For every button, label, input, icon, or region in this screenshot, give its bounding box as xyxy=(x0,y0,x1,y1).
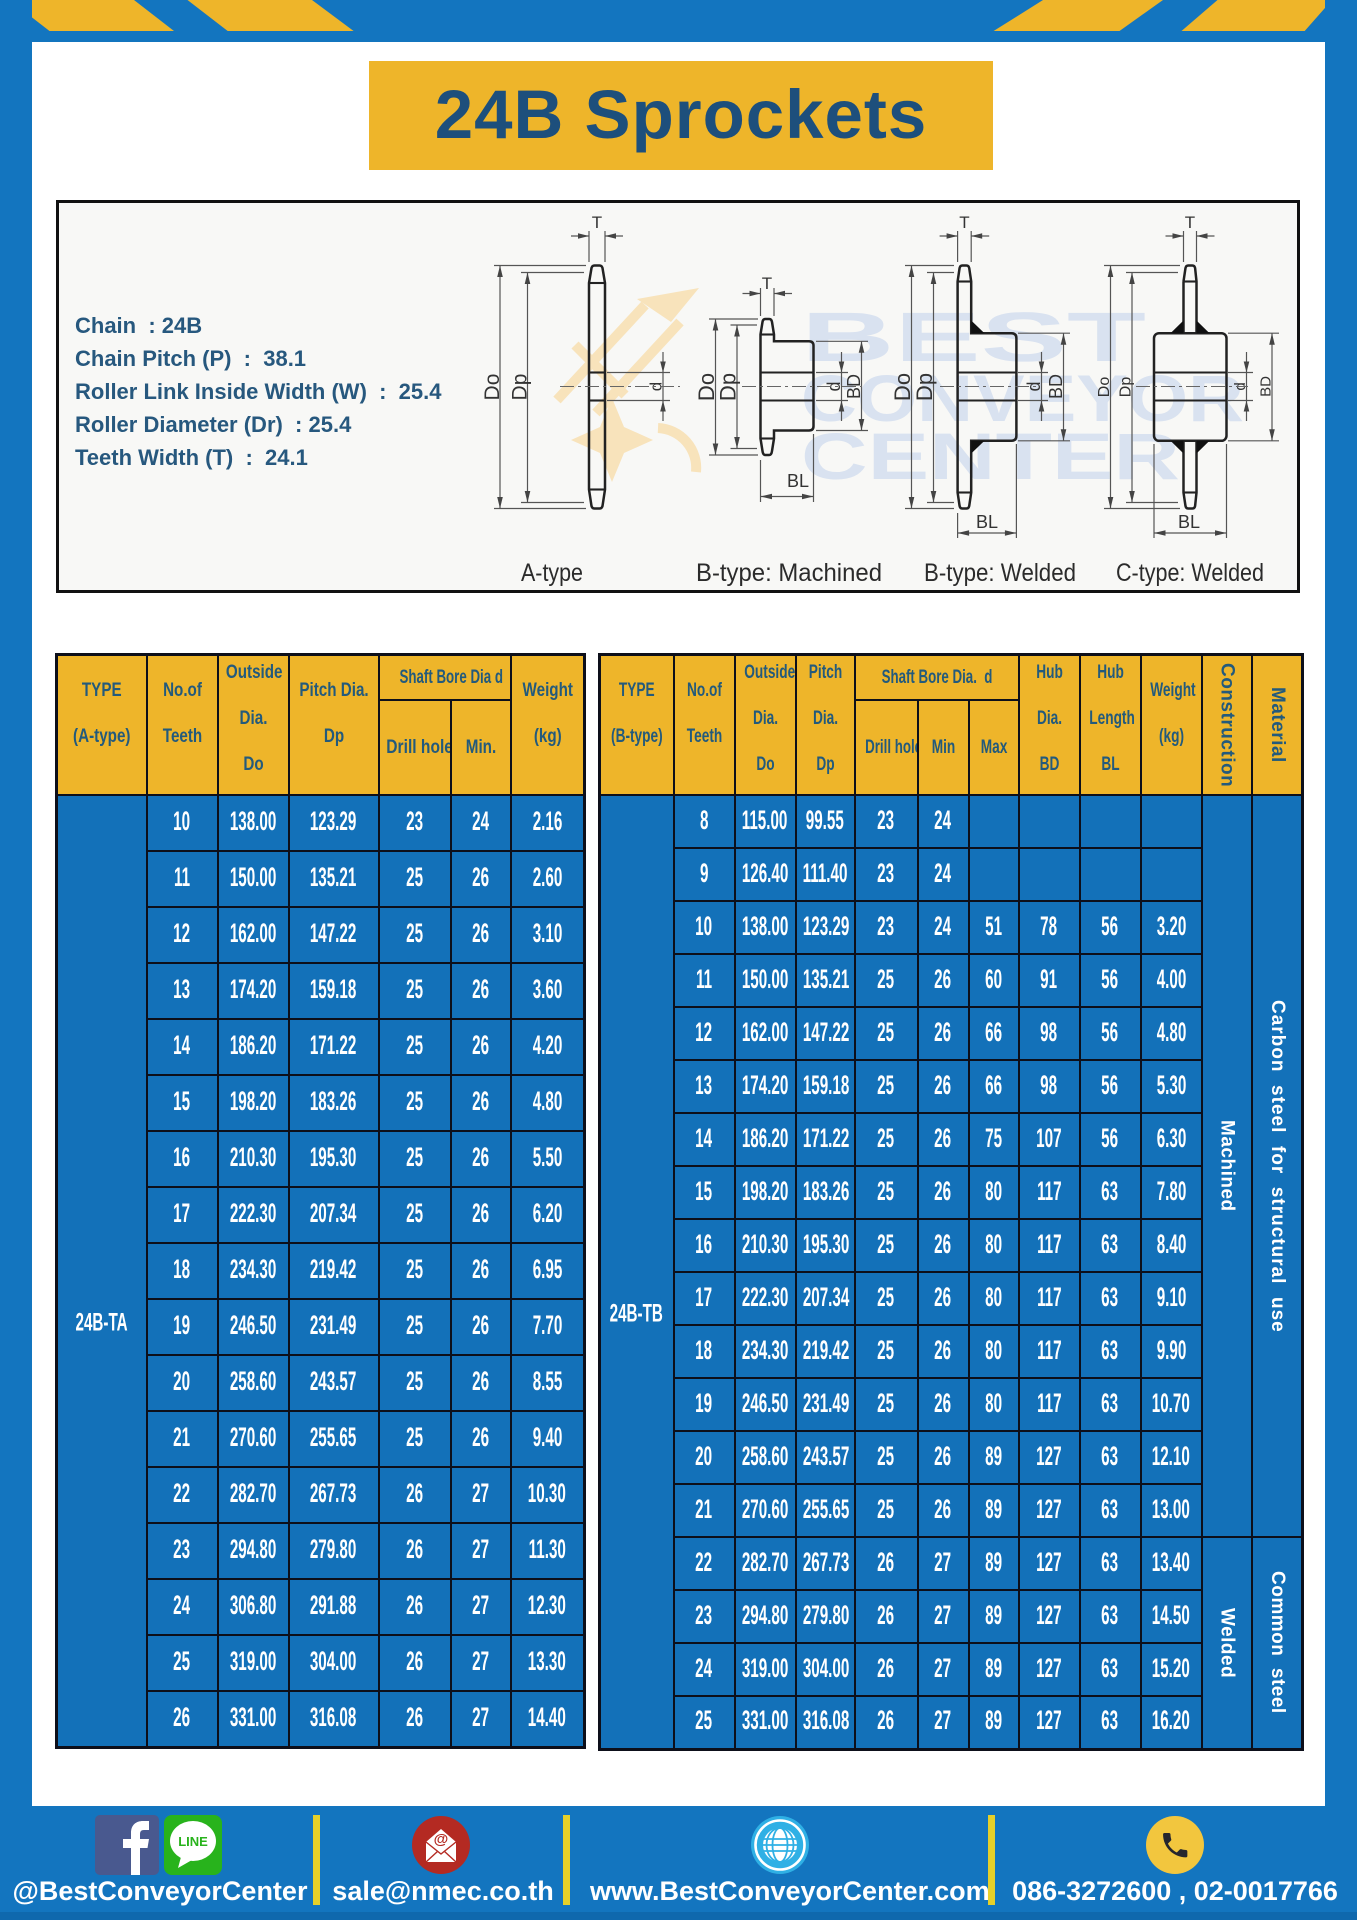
svg-text:B-type: Welded: B-type: Welded xyxy=(924,559,1076,587)
svg-text:T: T xyxy=(592,213,602,232)
svg-text:@: @ xyxy=(434,1831,449,1848)
svg-text:BL: BL xyxy=(976,512,998,532)
svg-text:Dp: Dp xyxy=(1118,377,1135,398)
svg-text:BD: BD xyxy=(1046,374,1066,399)
svg-text:C-type: Welded: C-type: Welded xyxy=(1116,559,1264,587)
svg-text:Dp: Dp xyxy=(912,373,937,401)
svg-text:BL: BL xyxy=(1178,512,1200,532)
svg-text:LINE: LINE xyxy=(178,1834,208,1849)
svg-text:T: T xyxy=(762,274,772,293)
svg-text:T: T xyxy=(1185,213,1195,232)
svg-text:Dp: Dp xyxy=(716,373,741,401)
svg-text:BD: BD xyxy=(1258,376,1275,397)
svg-text:B-type: Machined: B-type: Machined xyxy=(696,559,882,587)
svg-text:A-type: A-type xyxy=(521,559,583,587)
svg-text:Do: Do xyxy=(481,374,504,401)
svg-text:T: T xyxy=(959,213,969,232)
svg-text:BL: BL xyxy=(787,471,809,491)
svg-text:Dp: Dp xyxy=(509,374,532,401)
svg-text:Do: Do xyxy=(1096,377,1113,398)
